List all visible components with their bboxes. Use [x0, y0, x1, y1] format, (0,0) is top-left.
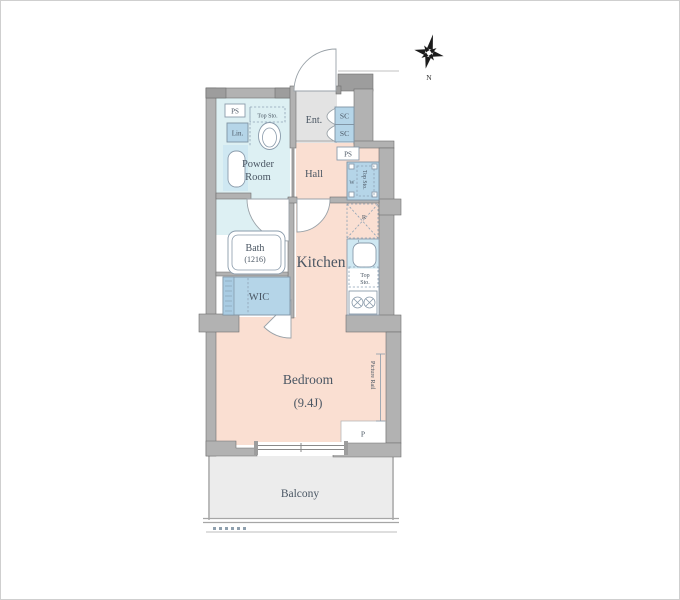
compass-north-label: N: [426, 73, 432, 82]
window-jamb-right: [344, 441, 348, 455]
washer-outlet-3: [349, 192, 354, 197]
entrance-door-swing: [294, 49, 336, 91]
fridge-label: R: [362, 214, 367, 221]
balcony-label: Balcony: [281, 488, 320, 500]
wall-right-bump: [379, 199, 401, 215]
wall-powder-hall: [292, 148, 295, 199]
washer-outlet-2: [372, 164, 377, 169]
wall-powder-bath: [216, 193, 251, 199]
sc-top-label: SC: [340, 112, 349, 121]
top-sto-toilet-label: Top Sto.: [257, 114, 278, 120]
floor-plan-page: PS Top Sto. Lin. Powder Room Ent. SC SC …: [0, 0, 680, 600]
floor-plan: PS Top Sto. Lin. Powder Room Ent. SC SC …: [1, 1, 680, 600]
wall-cross-stub: [346, 315, 401, 332]
wall-right-lower: [386, 332, 401, 443]
kitchen-sink-icon: [353, 243, 376, 267]
bedroom-label: Bedroom: [283, 372, 334, 387]
powder-room-label-2: Room: [245, 172, 271, 183]
wall-right-mid: [379, 148, 394, 318]
top-sto-kitchen-label-1: Top: [360, 273, 369, 279]
balcony-window: [254, 441, 348, 455]
wall-top-cap-left: [206, 88, 226, 98]
bath-size-label: (1216): [244, 255, 266, 264]
sc-bottom-label: SC: [340, 129, 349, 138]
bedroom-size-label: (9.4J): [294, 396, 323, 410]
top-sto-kitchen-label-2: Sto.: [360, 280, 370, 286]
balcony-floor: [208, 456, 394, 518]
ps-top-label: PS: [231, 108, 239, 116]
bath-label: Bath: [246, 243, 265, 254]
window-jamb-left: [254, 441, 258, 455]
linen-label: Lin.: [232, 130, 244, 138]
wall-left: [206, 88, 216, 456]
compass: N: [411, 31, 448, 82]
pipe-label: P: [361, 430, 365, 439]
powder-room-label-1: Powder: [242, 159, 275, 170]
wall-under-sc: [354, 141, 394, 148]
balcony-drain-dots: [213, 527, 246, 530]
entrance-label: Ent.: [306, 115, 322, 126]
toilet-icon: [259, 123, 281, 150]
ps-hall-label: PS: [344, 151, 352, 159]
compass-star-icon: [411, 31, 448, 71]
washer-label: W: [349, 180, 355, 186]
washer-outlet-1: [349, 164, 354, 169]
top-sto-washer-label: Top Sto.: [361, 170, 367, 190]
picture-rail-label: Picture Rail: [369, 361, 375, 390]
entry-door-jamb: [336, 86, 341, 94]
wic-label: WIC: [249, 292, 269, 303]
kitchen-label: Kitchen: [296, 254, 345, 271]
wall-entrance-cap: [338, 74, 373, 91]
wall-left-pillar: [199, 314, 239, 332]
wall-right-upper: [354, 89, 373, 144]
wall-powder-entrance: [290, 86, 296, 148]
hall-label: Hall: [305, 169, 323, 180]
